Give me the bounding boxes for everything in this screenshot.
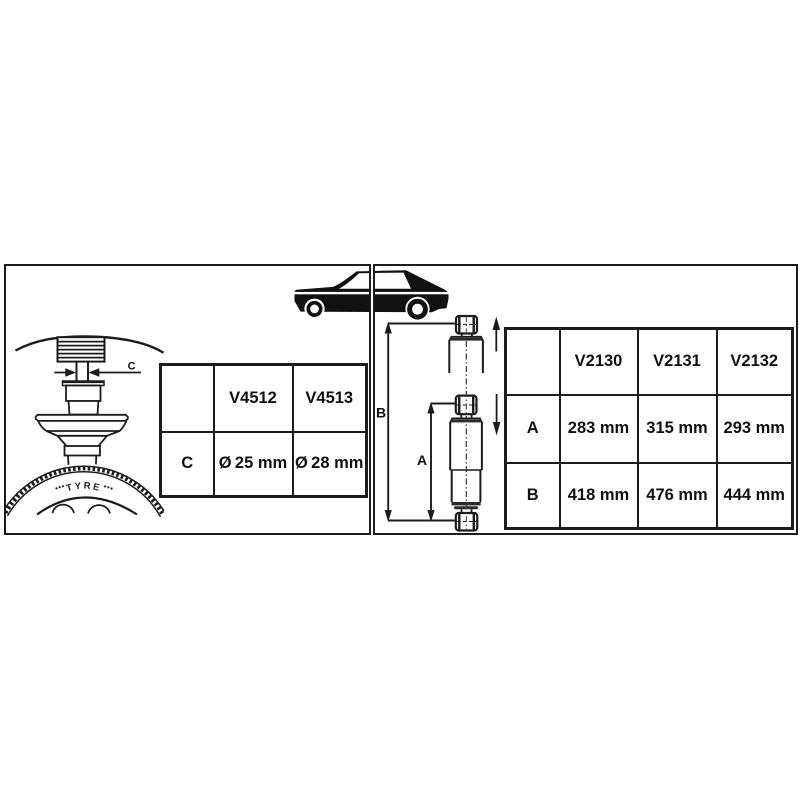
svg-text:B: B xyxy=(376,404,386,420)
svg-text:TYRE: TYRE xyxy=(65,481,103,495)
svg-text:C: C xyxy=(128,361,136,373)
svg-text:A: A xyxy=(417,452,427,468)
